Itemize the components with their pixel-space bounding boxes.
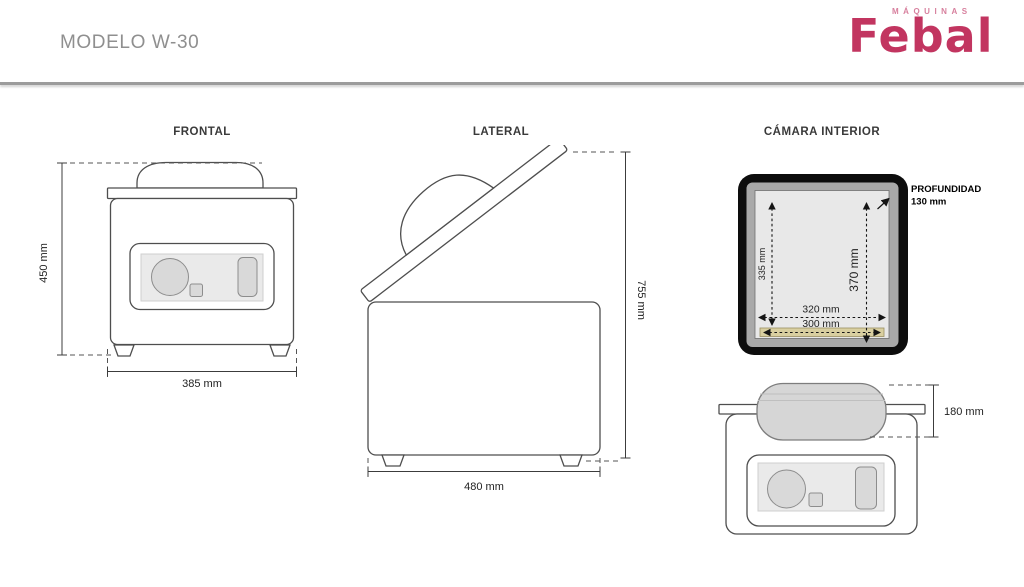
lateral-drawing: 755 mm 480 mm — [350, 145, 660, 500]
gauge-icon — [768, 470, 806, 508]
lateral-foot-left — [382, 455, 404, 466]
lateral-body — [368, 302, 600, 455]
frontal-view-title: FRONTAL — [92, 126, 312, 138]
seal-bar-width-label: 300 mm — [802, 319, 839, 330]
frontal-lid-dome — [137, 163, 263, 189]
header-divider — [0, 82, 1024, 85]
chamber-height-right-label: 370 mm — [847, 248, 861, 291]
chamber-depth-label: PROFUNDIDAD — [911, 184, 981, 195]
frontal-height-label: 450 mm — [38, 243, 50, 283]
lateral-depth-label: 480 mm — [464, 481, 504, 493]
frontal-foot-left — [114, 345, 134, 356]
chamber-width-label: 320 mm — [802, 305, 839, 316]
brand-name: Febal — [848, 12, 998, 60]
lateral-machine — [350, 145, 600, 466]
lateral-foot-right — [560, 455, 582, 466]
gauge-icon — [152, 259, 189, 296]
page-title: MODELO W-30 — [60, 32, 199, 54]
rear-machine — [719, 384, 925, 535]
frontal-machine — [108, 163, 297, 357]
button-icon — [190, 284, 203, 297]
lateral-height-label: 755 mm — [635, 280, 647, 320]
chamber-depth-value: 130 mm — [911, 197, 946, 208]
button-icon — [809, 493, 823, 507]
lateral-view-title: LATERAL — [391, 126, 611, 138]
switch-icon — [856, 467, 877, 509]
chamber-drawing: 335 mm 370 mm 320 mm 300 mm PROFUNDIDAD … — [700, 145, 1024, 560]
rear-lid-height-label: 180 mm — [944, 406, 984, 418]
lid-slab — [360, 145, 567, 302]
frontal-width-dimension: 385 mm — [108, 349, 297, 390]
chamber-view-title: CÁMARA INTERIOR — [712, 126, 932, 138]
frontal-drawing: 450 mm 385 mm — [30, 145, 340, 400]
brand-logo: MÁQUINAS Febal — [848, 7, 998, 60]
frontal-lid-bar — [108, 188, 297, 199]
frontal-width-label: 385 mm — [182, 378, 222, 390]
chamber-floor — [755, 191, 889, 339]
switch-icon — [238, 258, 257, 297]
lateral-open-lid — [350, 145, 568, 302]
rear-lid-dome — [757, 384, 886, 441]
chamber-height-left-label: 335 mm — [757, 248, 767, 281]
frontal-foot-right — [270, 345, 290, 356]
